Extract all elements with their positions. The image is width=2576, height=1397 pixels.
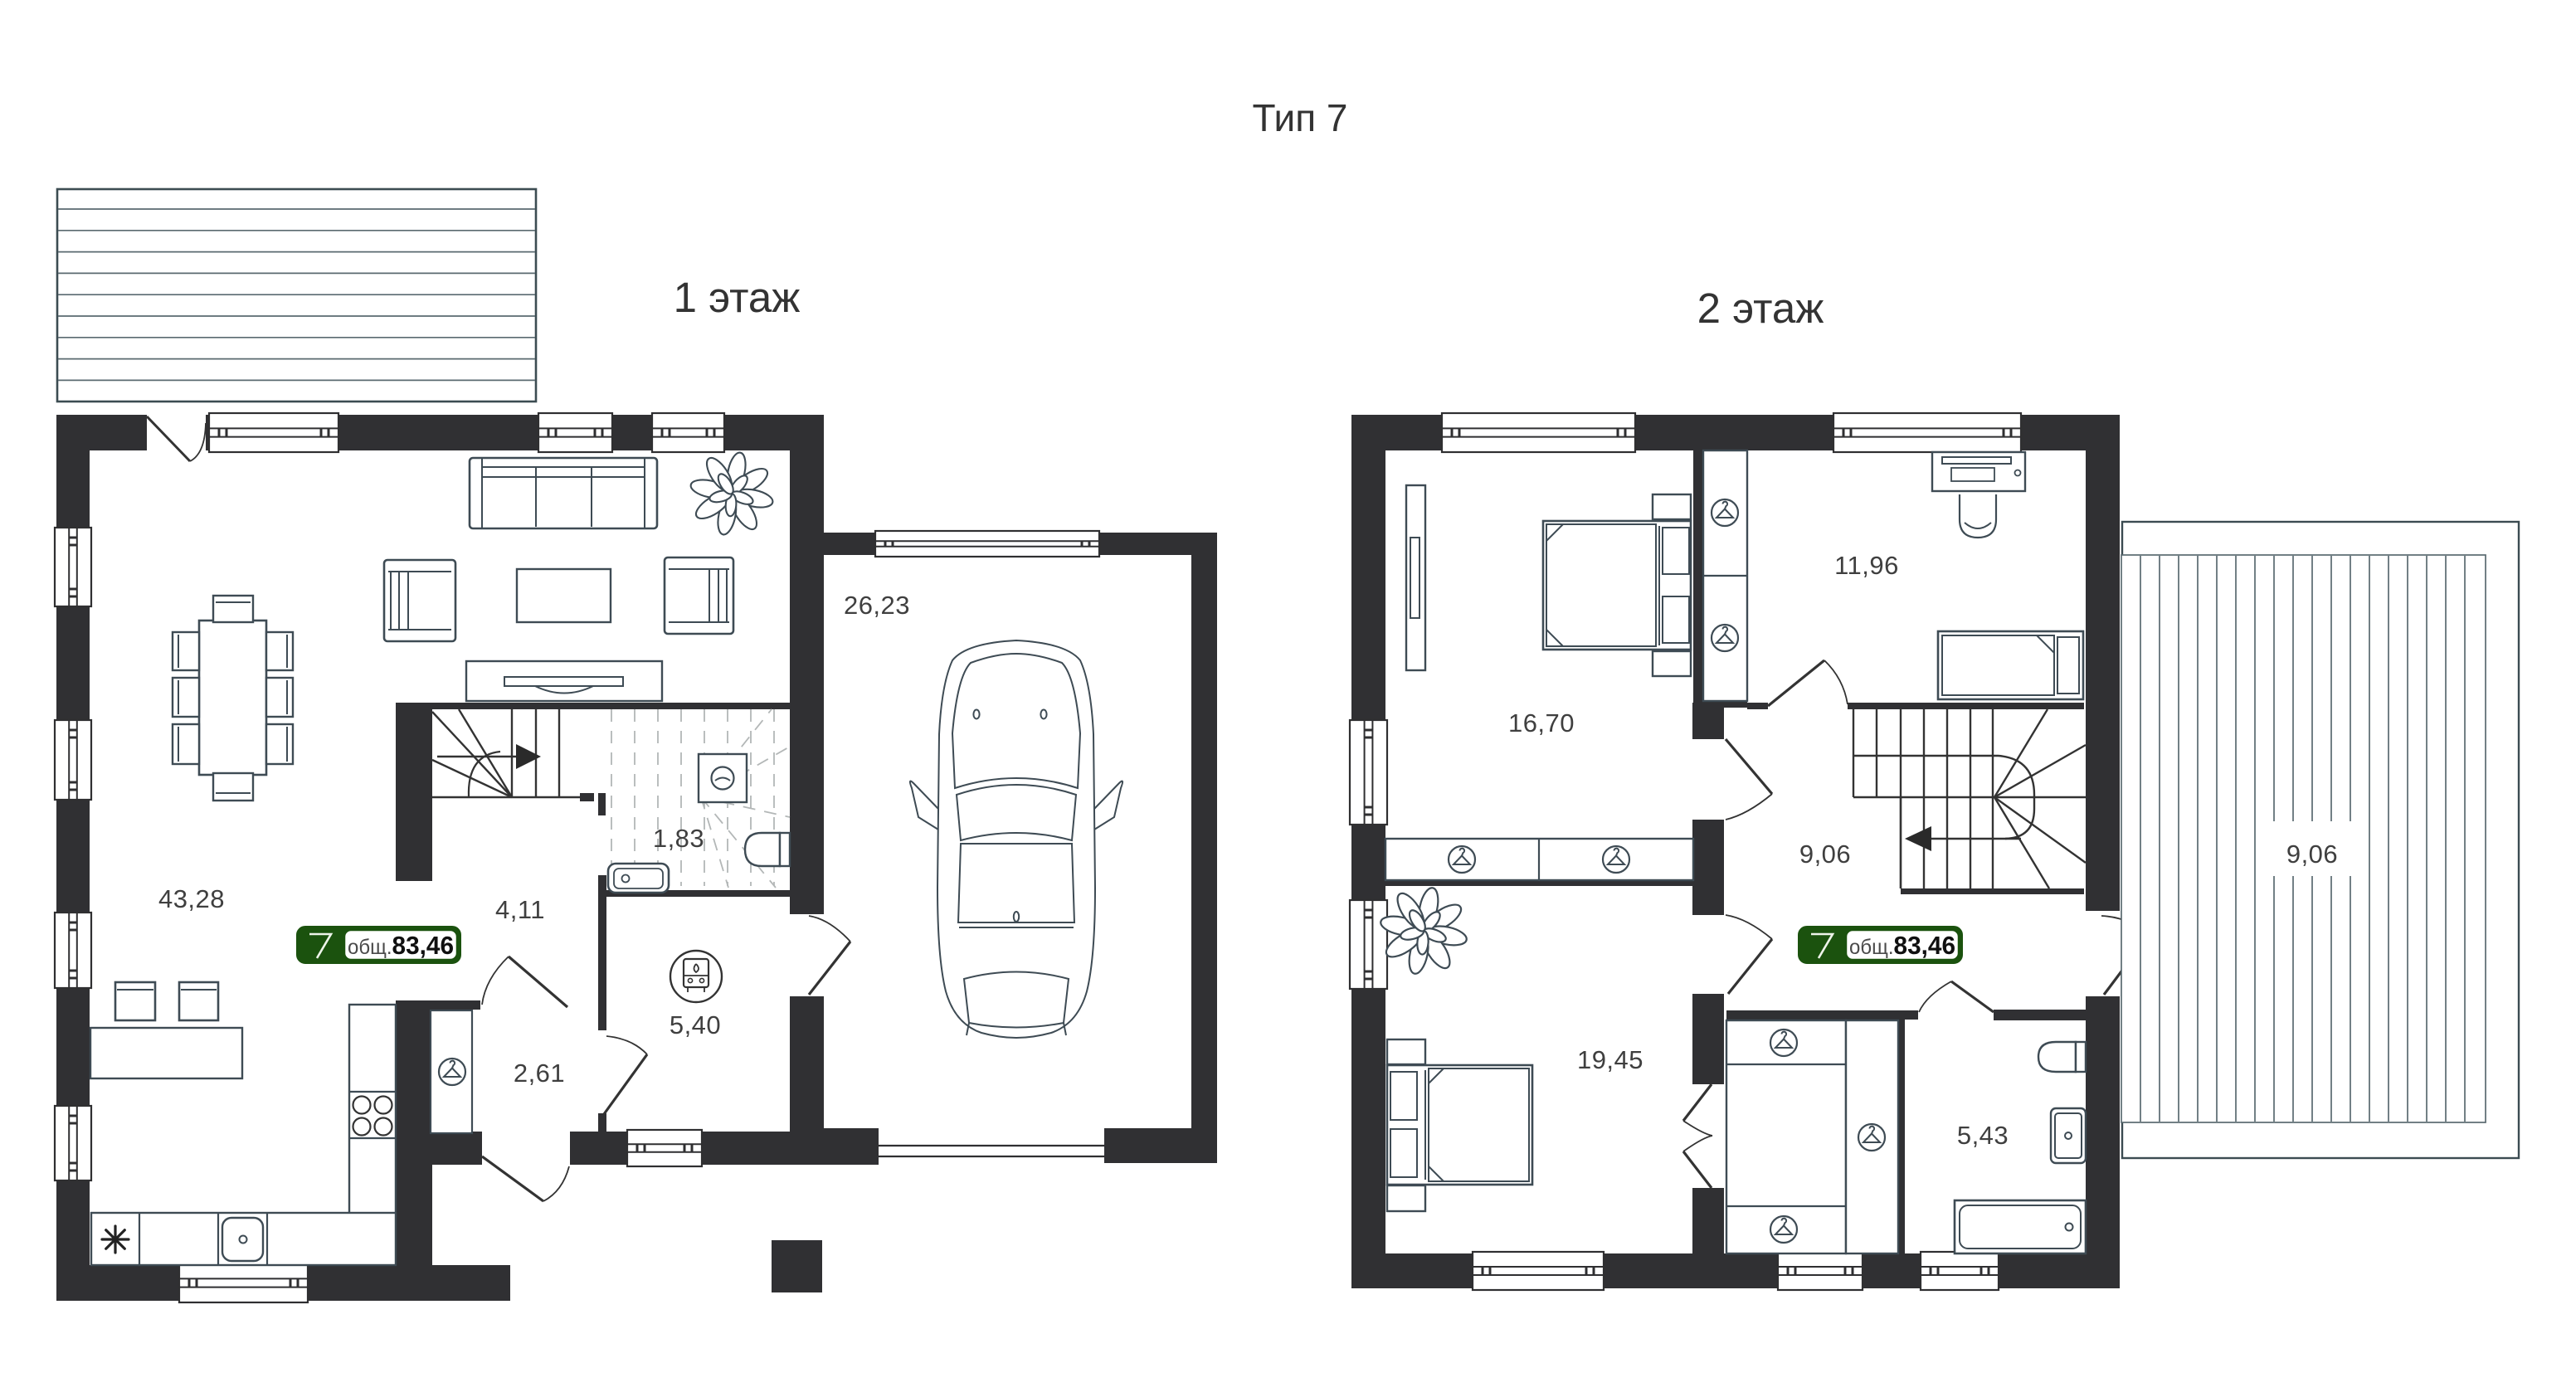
svg-text:5,40: 5,40 bbox=[670, 1010, 721, 1039]
svg-text:4,11: 4,11 bbox=[495, 895, 545, 924]
svg-text:общ.83,46: общ.83,46 bbox=[1849, 931, 1955, 960]
svg-text:26,23: 26,23 bbox=[844, 591, 910, 620]
svg-text:Тип 7: Тип 7 bbox=[1252, 96, 1347, 139]
svg-text:9,06: 9,06 bbox=[1799, 840, 1851, 869]
svg-text:9,06: 9,06 bbox=[2286, 840, 2338, 869]
svg-text:1 этаж: 1 этаж bbox=[674, 274, 801, 321]
svg-text:5,43: 5,43 bbox=[1957, 1121, 2009, 1150]
svg-text:11,96: 11,96 bbox=[1834, 551, 1899, 580]
svg-text:19,45: 19,45 bbox=[1577, 1045, 1643, 1074]
svg-text:2 этаж: 2 этаж bbox=[1697, 285, 1824, 332]
svg-text:2,61: 2,61 bbox=[514, 1059, 565, 1088]
svg-text:общ.83,46: общ.83,46 bbox=[348, 931, 454, 960]
svg-text:43,28: 43,28 bbox=[158, 884, 225, 913]
svg-text:1,83: 1,83 bbox=[653, 824, 704, 853]
svg-text:16,70: 16,70 bbox=[1508, 708, 1575, 737]
